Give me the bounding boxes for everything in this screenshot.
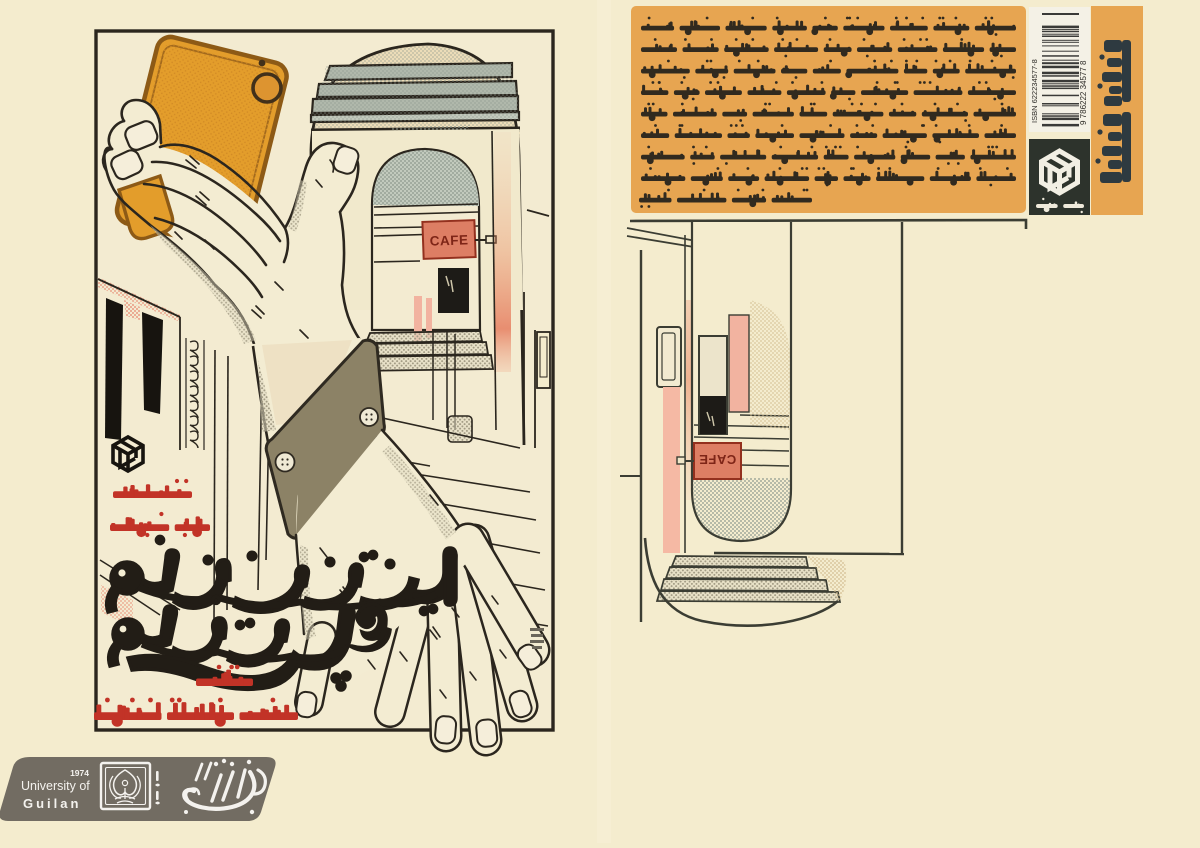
svg-text:ISBN 622234577-8: ISBN 622234577-8 [1030, 59, 1039, 123]
svg-text:9 786222 34577 8: 9 786222 34577 8 [1079, 60, 1088, 125]
svg-text:CAFE: CAFE [429, 232, 468, 248]
svg-text:University of: University of [21, 779, 90, 793]
svg-text:Guilan: Guilan [23, 796, 81, 811]
svg-text:CAFE: CAFE [699, 452, 736, 467]
svg-text:1974: 1974 [70, 768, 89, 778]
